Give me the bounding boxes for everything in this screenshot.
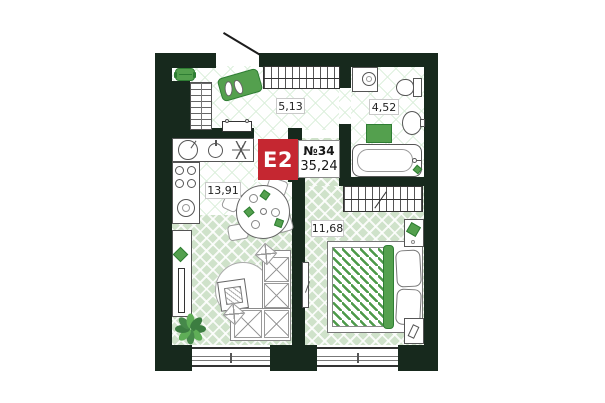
unit-info-box[interactable]: №34 35,24 xyxy=(298,140,340,178)
nightstand-bottom xyxy=(404,318,424,344)
kitchen-sink xyxy=(178,140,198,160)
bathtub xyxy=(352,144,422,177)
unit-type-badge[interactable]: E2 xyxy=(258,139,298,180)
kitchen-living-area-label: 13,91 xyxy=(205,182,241,199)
sofa-cushion xyxy=(264,310,289,338)
wall-bottom-left xyxy=(155,345,192,371)
bathroom-area-label: 4,52 xyxy=(369,99,399,115)
stove xyxy=(174,165,199,197)
sofa-cushion xyxy=(264,283,289,308)
napkin xyxy=(259,189,270,200)
hallway-wardrobe xyxy=(263,66,340,89)
bathroom-sink xyxy=(400,109,426,137)
floor-plan: 5,13 4,52 13,91 11,68 E2 №34 35,24 xyxy=(0,0,605,403)
toilet xyxy=(394,77,424,99)
wall-bottom-right xyxy=(398,345,438,371)
wall-top-left xyxy=(155,53,216,68)
kitchen-faucet-pot xyxy=(208,143,223,158)
shoe-icon xyxy=(224,81,233,96)
hob-symbol xyxy=(232,141,250,159)
unit-type-label: E2 xyxy=(263,148,293,172)
entry-bench xyxy=(175,68,195,81)
wall-bottom-center xyxy=(270,345,317,371)
napkin xyxy=(274,218,284,228)
napkin xyxy=(243,206,254,217)
decor-item xyxy=(408,324,420,339)
bedroom-area-label: 11,68 xyxy=(311,220,344,237)
kitchen-living-area-value: 13,91 xyxy=(207,185,239,196)
laptop xyxy=(224,286,243,305)
console-table xyxy=(222,121,252,132)
shoe-icon xyxy=(232,79,245,96)
bathroom-door-opening-floor xyxy=(339,88,351,124)
bedroom-wardrobe xyxy=(343,186,423,212)
bed-blanket xyxy=(332,247,385,327)
unit-total-area: 35,24 xyxy=(300,159,337,174)
unit-number: №34 xyxy=(303,144,334,158)
bathroom-area-value: 4,52 xyxy=(372,102,397,113)
wall-entry-niche xyxy=(172,81,190,130)
bed-headboard-runner xyxy=(383,245,394,329)
entrance-door-leaf xyxy=(223,32,260,55)
plant xyxy=(170,312,210,348)
bath-mat xyxy=(366,124,392,143)
window-bedroom xyxy=(317,347,398,367)
bedroom-door-leaf xyxy=(302,262,309,308)
nightstand-top xyxy=(404,219,424,247)
dining-table xyxy=(236,185,290,239)
bed-pillow xyxy=(395,249,422,287)
hallway-area-label: 5,13 xyxy=(276,98,305,114)
tv xyxy=(178,268,185,313)
table-lamp xyxy=(406,222,421,237)
window-living-room xyxy=(192,347,270,367)
oven xyxy=(177,199,195,217)
wall-right xyxy=(424,53,438,371)
shoe-rack xyxy=(190,82,212,130)
washing-machine xyxy=(352,67,378,92)
wall-bathroom-upper xyxy=(339,53,351,88)
wall-bathroom-south xyxy=(339,177,438,186)
hallway-area-value: 5,13 xyxy=(278,101,303,112)
bedroom-area-value: 11,68 xyxy=(312,223,344,234)
